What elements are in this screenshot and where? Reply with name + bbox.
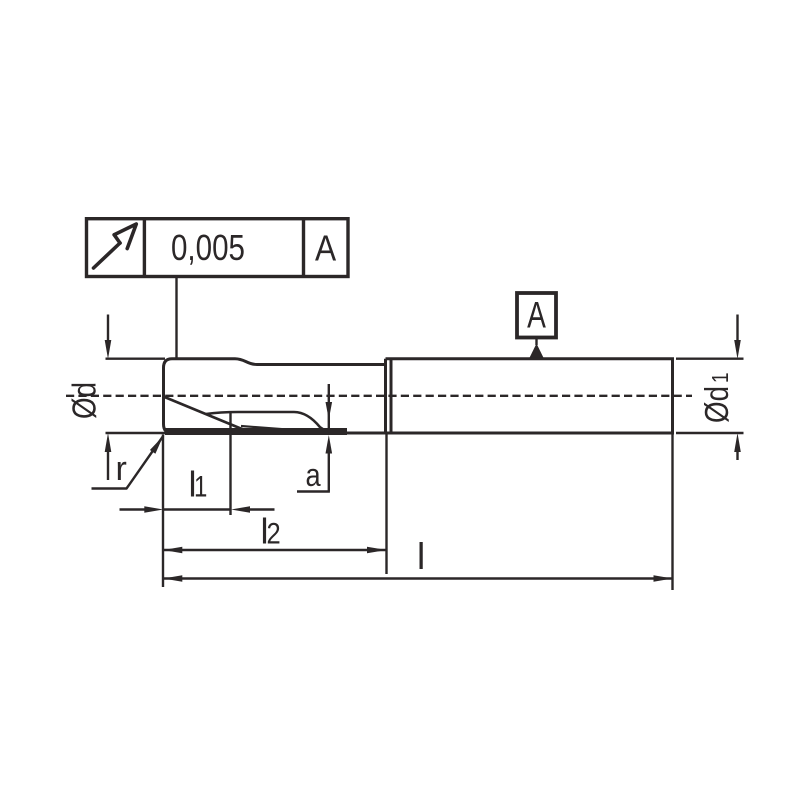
svg-text:0,005: 0,005 [171,228,245,269]
svg-text:2: 2 [267,517,281,550]
svg-text:r: r [116,450,127,488]
svg-text:1: 1 [709,372,734,383]
svg-text:A: A [315,229,336,269]
svg-text:l: l [417,536,425,577]
svg-text:a: a [305,458,321,494]
svg-text:Ød: Ød [699,386,736,423]
svg-text:A: A [527,295,547,337]
svg-text:Ød: Ød [66,382,103,419]
svg-text:1: 1 [194,469,207,503]
